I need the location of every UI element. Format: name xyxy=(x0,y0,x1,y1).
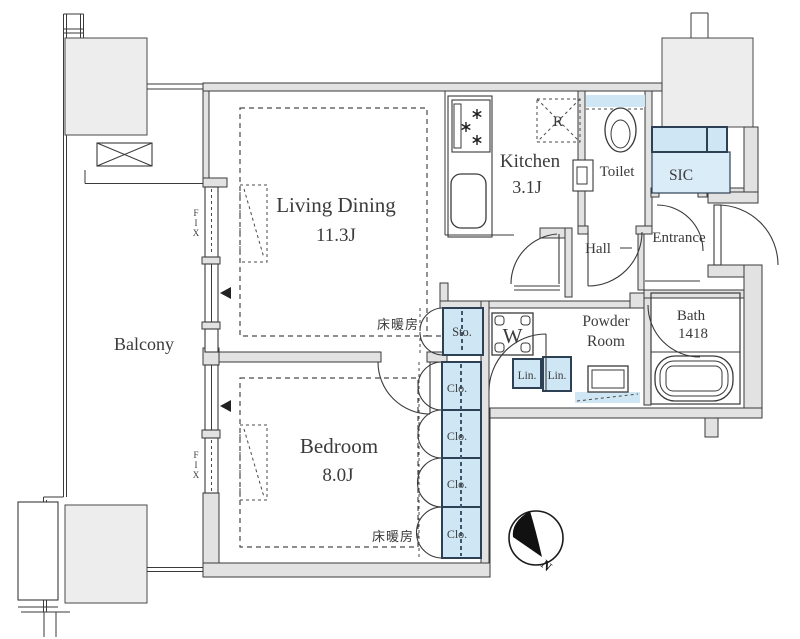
closet-label: Clo. xyxy=(447,429,467,443)
closet-label: Clo. xyxy=(447,381,467,395)
floor-plan: R W xyxy=(0,0,800,639)
bathtub-icon xyxy=(655,356,733,401)
hatch-box xyxy=(97,143,152,166)
room-label-kitchen: Kitchen xyxy=(500,151,561,172)
exterior-structure-left xyxy=(18,14,203,637)
room-size-bedroom: 8.0J xyxy=(322,465,353,486)
fix-window-upper xyxy=(205,187,218,257)
sliding-window-bedroom xyxy=(205,365,218,430)
wall-niche xyxy=(573,160,593,191)
room-label-hall: Hall xyxy=(585,241,611,257)
room-label-bedroom: Bedroom xyxy=(300,434,378,458)
stove xyxy=(452,100,490,152)
compass: N xyxy=(509,511,563,575)
door-storage xyxy=(420,308,443,355)
structure-block-top-right xyxy=(662,38,753,127)
exterior-structure-top-right xyxy=(662,13,753,127)
refrigerator-space: R xyxy=(537,99,580,142)
floor-heating-label-bedroom: 床暖房 xyxy=(372,529,414,544)
linen-label: Lin. xyxy=(548,370,567,382)
room-label-bath: Bath xyxy=(677,308,706,324)
furniture-dashed-bedroom xyxy=(240,425,267,500)
room-size-bath: 1418 xyxy=(678,326,708,342)
furniture-dashed-living xyxy=(240,185,267,262)
closet-label: Clo. xyxy=(447,527,467,541)
room-label-living-dining: Living Dining xyxy=(276,193,396,217)
structure-block-bottom-left xyxy=(65,505,147,603)
windows xyxy=(205,187,231,493)
room-label-toilet: Toilet xyxy=(600,164,636,180)
refrigerator-label: R xyxy=(553,114,563,130)
floor-heating-label-living: 床暖房 xyxy=(377,317,419,332)
toilet-bowl-icon xyxy=(605,108,636,152)
door-closets xyxy=(417,362,443,558)
closet-label: Clo. xyxy=(447,477,467,491)
window-direction-marker xyxy=(220,400,231,412)
vanity xyxy=(575,366,640,403)
fix-window-label-upper: FIX xyxy=(191,208,201,238)
washer-pan: W xyxy=(492,313,533,355)
floor-plan-page: R W xyxy=(0,0,800,639)
toilet-room xyxy=(586,95,645,152)
fix-window-label-lower: FIX xyxy=(191,450,201,480)
window-direction-marker xyxy=(220,287,231,299)
room-size-living-dining: 11.3J xyxy=(316,225,356,246)
room-label-powder-2: Room xyxy=(587,333,625,350)
structure-block-top-left xyxy=(65,38,147,135)
room-label-balcony: Balcony xyxy=(114,334,174,354)
storage-label: Sto. xyxy=(452,325,472,339)
sliding-window-living xyxy=(205,264,218,352)
kitchen-sink xyxy=(451,174,486,228)
room-label-entrance: Entrance xyxy=(652,230,706,246)
room-size-kitchen: 3.1J xyxy=(512,177,542,197)
structure-pillar xyxy=(18,502,58,600)
linen-label: Lin. xyxy=(518,370,537,382)
toilet-shelf xyxy=(586,95,645,107)
room-label-sic: SIC xyxy=(669,167,693,184)
fix-window-lower xyxy=(205,438,218,493)
room-label-powder-1: Powder xyxy=(582,313,630,330)
door-living-hall xyxy=(511,234,560,290)
door-bedroom xyxy=(378,362,430,414)
